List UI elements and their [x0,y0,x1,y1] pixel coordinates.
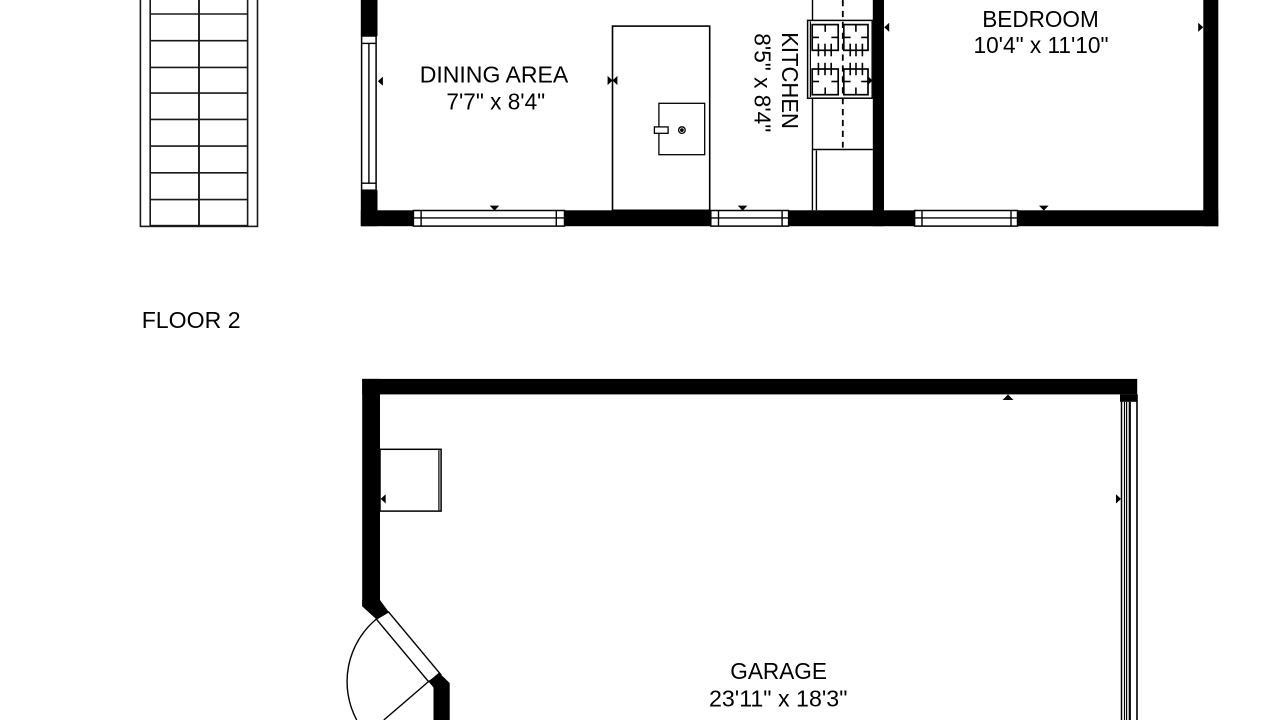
svg-text:FLOOR 2: FLOOR 2 [142,307,241,333]
svg-text:10'4" x 11'10": 10'4" x 11'10" [974,32,1109,58]
svg-text:BEDROOM: BEDROOM [982,6,1099,32]
svg-text:DINING AREA: DINING AREA [420,61,569,87]
svg-text:KITCHEN: KITCHEN [777,32,803,129]
svg-text:23'11" x 18'3": 23'11" x 18'3" [709,685,848,711]
svg-text:8'5" x 8'4": 8'5" x 8'4" [749,33,775,132]
svg-text:GARAGE: GARAGE [730,658,827,684]
svg-text:7'7" x 8'4": 7'7" x 8'4" [446,88,545,114]
